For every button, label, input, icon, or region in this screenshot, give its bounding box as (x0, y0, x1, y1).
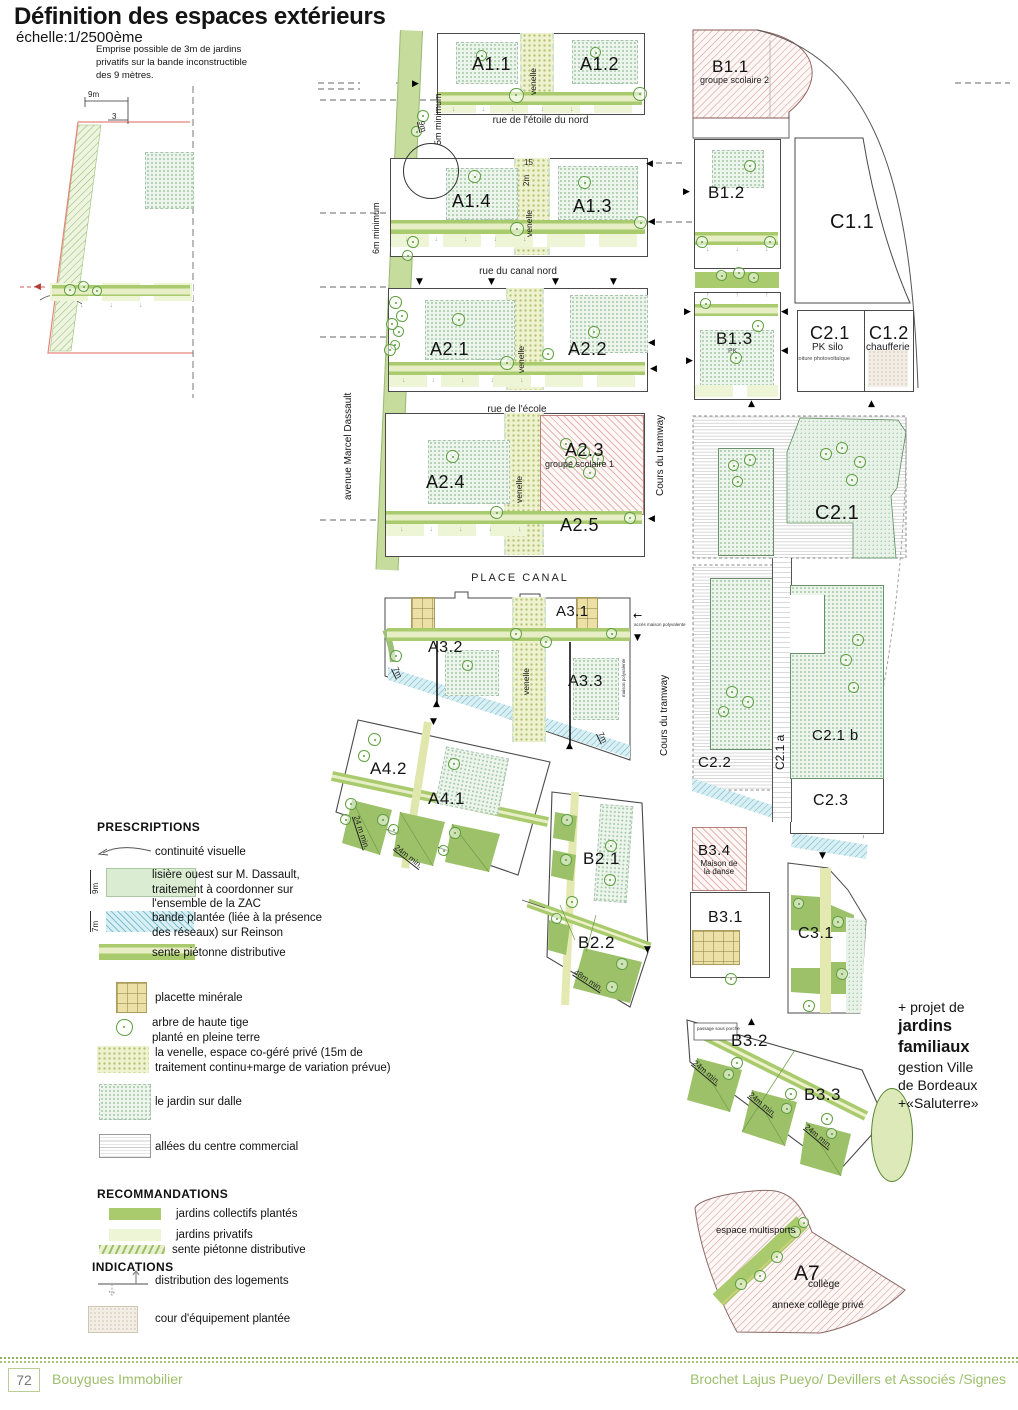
tree-icon (846, 474, 858, 486)
zone-a23-sub: groupe scolaire 1 (545, 460, 614, 469)
dim-2m: 2m (522, 170, 531, 186)
tree-icon (561, 814, 573, 826)
tree-icon (718, 706, 729, 717)
arrow-icon: ▶ (412, 80, 419, 89)
venelle-label-a2: venelle (517, 318, 526, 373)
continuite-arrow-icon (95, 843, 155, 859)
tree-icon (752, 320, 764, 332)
side-note-line2: jardins (898, 1018, 952, 1035)
tree-icon (606, 628, 617, 639)
footer-left-text: Bouygues Immobilier (52, 1371, 183, 1387)
venelle-label-a14: venelle (525, 182, 534, 237)
legend-item-continuite: continuité visuelle (155, 845, 246, 860)
tree-icon (771, 1251, 783, 1263)
tree-icon (604, 874, 616, 886)
note-text: Emprise possible de 3m de jardins privat… (96, 44, 247, 82)
zone-c22: C2.2 (698, 755, 731, 771)
dim-5m-minimum: 5m minimum (434, 70, 443, 145)
tree-icon (396, 310, 408, 322)
zone-c12-sub: chaufferie (866, 343, 910, 354)
footer-right-text: Brochet Lajus Pueyo/ Devillers et Associ… (690, 1371, 1006, 1387)
legend-item-sente: sente piétonne distributive (152, 946, 286, 961)
tree-icon (781, 1103, 792, 1114)
legend-swatch-dalle (99, 1084, 151, 1120)
zone-c12: C1.2 (869, 324, 909, 343)
tree-icon (723, 1069, 734, 1080)
zone-b11-sub: groupe scolaire 2 (700, 76, 769, 85)
tree-icon (402, 250, 413, 261)
street-tramway-2: Cours du tramway (660, 658, 671, 756)
legend-swatch-sente2 (99, 1245, 165, 1254)
legend-swatch-cour (88, 1306, 138, 1333)
zone-b31: B3.1 (708, 910, 743, 927)
zone-a13: A1.3 (573, 197, 612, 216)
arrow-icon: ▶ (684, 308, 691, 317)
tree-icon (64, 284, 76, 296)
arrows-a1: ↓↓↓↓↓ (452, 106, 600, 113)
inset-garden (145, 152, 194, 209)
tree-icon (388, 824, 399, 835)
arrow-icon: ▲ (433, 700, 440, 709)
legend-item-dalle: le jardin sur dalle (155, 1095, 242, 1110)
legend-swatch-allees (99, 1134, 151, 1158)
zone-c11: C1.1 (830, 212, 874, 233)
zone-a7-sub2: annexe collège privé (772, 1301, 864, 1312)
tree-icon (832, 916, 844, 928)
tree-icon (358, 750, 370, 762)
zone-a11: A1.1 (472, 55, 511, 74)
venelle-label-a1: venelle (529, 40, 538, 95)
zone-b21: B2.1 (583, 850, 620, 868)
roundabout-circle (403, 143, 459, 199)
tree-icon (540, 636, 552, 648)
arrow-icon: ◀ (648, 218, 655, 227)
tree-icon (390, 650, 402, 662)
arrow-icon: ▼ (819, 852, 826, 861)
side-note-line4: gestion Ville (898, 1060, 973, 1075)
arrow-icon: ▲ (748, 400, 755, 409)
zone-a33: A3.3 (568, 674, 603, 691)
arrows-a14: ↓↓↓↓↓ (405, 236, 553, 243)
venelle-label-a24: venelle (515, 448, 524, 503)
tree-icon (468, 170, 481, 183)
tree-icon (633, 87, 647, 101)
footer-rule-top (0, 1357, 1018, 1359)
side-note-line5: de Bordeaux (898, 1078, 977, 1093)
zone-c21-silo-sub1: PK silo (812, 343, 843, 354)
zone-a41: A4.1 (428, 790, 465, 808)
zone-a21: A2.1 (430, 340, 469, 359)
zone-a22: A2.2 (568, 340, 607, 359)
tree-icon (803, 1000, 815, 1012)
legend-recommandations-title: RECOMMANDATIONS (97, 1187, 228, 1201)
arrow-icon: ◀ (781, 347, 788, 356)
legend-item-cour: cour d'équipement plantée (155, 1312, 290, 1327)
garden-c22 (710, 578, 775, 750)
street-avenue-dassault: avenue Marcel Dassault (344, 388, 355, 500)
page-title: Définition des espaces extérieurs (14, 4, 386, 29)
arrow-icon: ▲ (868, 400, 875, 409)
arrow-icon: ▼ (552, 278, 559, 287)
tree-icon (509, 88, 524, 103)
tree-icon (848, 682, 859, 693)
arrow-icon: ◀ (781, 308, 788, 317)
zone-c21a: C2.1 a (774, 700, 787, 770)
arrow-icon: ▼ (488, 278, 495, 287)
tree-icon (634, 216, 647, 229)
arrow-icon: ▼ (610, 278, 617, 287)
zone-a7-sub1: collège (808, 1280, 840, 1291)
zone-a14: A1.4 (452, 192, 491, 211)
tree-icon (696, 236, 708, 248)
legend-prescriptions-title: PRESCRIPTIONS (97, 820, 200, 834)
tree-icon (821, 1113, 833, 1125)
tree-icon (754, 1270, 766, 1282)
tree-icon (748, 272, 759, 283)
venelle-label-a3: venelle (522, 640, 531, 695)
tree-icon (728, 460, 739, 471)
zone-c21-big: C2.1 (815, 503, 859, 524)
tree-icon (820, 448, 832, 460)
tree-icon (386, 318, 398, 330)
tree-icon (725, 973, 737, 985)
sente-a24 (386, 511, 642, 524)
tree-icon (438, 845, 449, 856)
street-place-canal: PLACE CANAL (420, 572, 620, 584)
inset-detail (20, 86, 193, 398)
maison-note: maison polyvalente (621, 655, 626, 697)
acces-arrow-icon: ← (633, 610, 642, 621)
arrow-icon: ▼ (644, 946, 651, 955)
tree-icon (700, 298, 711, 309)
legend-item-allees: allées du centre commercial (155, 1140, 298, 1155)
tree-icon (840, 654, 852, 666)
tree-icon (735, 1278, 747, 1290)
street-canal-nord: rue du canal nord (390, 266, 646, 277)
tree-icon (578, 176, 591, 189)
tree-icon (92, 286, 102, 296)
inset-left-arrow-icon: ◀ (34, 283, 41, 292)
arrows-b12: ↓↓↓ (706, 246, 795, 253)
legend-indications-title: INDICATIONS (92, 1260, 174, 1274)
zone-a23: A2.3 (565, 441, 604, 460)
tree-icon (852, 634, 864, 646)
arrows-a24: ↓↓↓↓↓ (400, 526, 548, 533)
tree-icon (407, 236, 419, 248)
inset-down-arrows: ↓↓↓ (80, 302, 169, 309)
inset-dim-3: 3 (112, 112, 116, 121)
zone-b34: B3.4 (698, 843, 730, 859)
tree-icon (732, 476, 743, 487)
legend-item-arbre: arbre de haute tige planté en pleine ter… (152, 1016, 260, 1045)
zone-b13: B1.3 (716, 330, 753, 348)
zone-b33: B3.3 (804, 1086, 841, 1104)
side-note-line6: +«Saluterre» (898, 1096, 979, 1111)
legend-swatch-collectifs (109, 1208, 161, 1220)
tree-icon (500, 356, 514, 370)
tree-icon (551, 913, 562, 924)
tree-icon (560, 854, 572, 866)
arrow-icon: ◀ (648, 515, 655, 524)
zone-b22: B2.2 (578, 934, 615, 952)
tree-icon (616, 958, 628, 970)
arrow-icon: ▼ (430, 718, 437, 727)
tree-icon (731, 1057, 743, 1069)
tree-icon (854, 456, 866, 468)
arrow-icon: ▼ (416, 278, 423, 287)
arrow-icon: ▼ (634, 634, 641, 643)
tree-icon (78, 281, 89, 292)
arrow-icon: ◀ (646, 160, 653, 169)
tramway-band-c21a (772, 558, 792, 822)
tree-icon (742, 696, 754, 708)
tree-icon (744, 160, 756, 172)
zone-b32: B3.2 (731, 1032, 768, 1050)
footer-page-box: 72 (8, 1368, 40, 1392)
dim-15: 15 (524, 158, 533, 167)
tree-icon (836, 442, 848, 454)
zone-a32: A3.2 (428, 640, 463, 657)
arrow-icon: ▶ (683, 188, 690, 197)
tree-icon (368, 733, 381, 746)
street-ecole: rue de l'école (389, 404, 645, 415)
tree-icon (490, 506, 503, 519)
zone-c21b: C2.1 b (812, 728, 859, 744)
zone-a12: A1.2 (580, 55, 619, 74)
zone-a24: A2.4 (426, 473, 465, 492)
arrow-icon: ◀ (648, 339, 655, 348)
street-tramway-1: Cours du tramway (656, 398, 667, 496)
legend-dim-9m: 9m (90, 870, 100, 894)
legend-tree-icon (116, 1019, 133, 1036)
tree-icon (446, 450, 459, 463)
zone-b12: B1.2 (708, 184, 745, 202)
cour-c12 (868, 350, 908, 387)
tree-icon (452, 313, 465, 326)
footer-page-number: 72 (16, 1372, 32, 1388)
tree-icon (566, 896, 578, 908)
zone-c21-silo: C2.1 (810, 324, 850, 343)
legend-item-bande: bande plantée (liée à la présence des ré… (152, 911, 322, 940)
tree-icon (345, 798, 357, 810)
sente-a3 (387, 628, 630, 641)
passage-note: passage sous porche (697, 1026, 740, 1031)
zone-a42: A4.2 (370, 760, 407, 778)
tree-icon (377, 814, 389, 826)
zone-multisports: espace multisports (716, 1226, 795, 1236)
tree-icon (448, 758, 460, 770)
acces-note: accès maison polyvalente (634, 622, 686, 627)
tree-icon (733, 267, 745, 279)
side-note-line3: familiaux (898, 1039, 970, 1056)
legend-item-collectifs: jardins collectifs plantés (176, 1207, 297, 1222)
garden-a32 (445, 650, 499, 696)
tree-icon (542, 348, 554, 360)
footer-rule-bottom (0, 1361, 1018, 1363)
tree-icon (588, 326, 600, 338)
tree-icon (510, 628, 522, 640)
c21b-notch (790, 595, 825, 654)
legend-item-placette: placette minérale (155, 991, 243, 1006)
tree-icon (716, 270, 727, 281)
tree-icon (785, 1088, 797, 1100)
side-note-line1: + projet de (898, 1000, 965, 1015)
legend-swatch-placette (116, 982, 147, 1013)
dim-6m-minimum: 6m minimum (372, 192, 381, 254)
zone-b13-sub: PK (728, 348, 737, 355)
tree-icon (793, 898, 804, 909)
legend-item-venelle: la venelle, espace co-géré privé (15m de… (155, 1046, 391, 1075)
tree-icon (798, 1217, 809, 1228)
arrow-icon: ▲ (748, 1018, 755, 1027)
arrow-icon: ◀ (650, 365, 657, 374)
legend-swatch-venelle (97, 1046, 149, 1073)
tree-icon (462, 660, 473, 671)
arrow-icon: ▲ (566, 742, 573, 751)
plan-page: Définition des espaces extérieurs échell… (0, 0, 1018, 1410)
zone-b11: B1.1 (712, 58, 749, 76)
zone-a31: A3.1 (556, 604, 588, 620)
tree-icon (606, 981, 618, 993)
sente-a1 (438, 92, 642, 105)
arrows-a2: ↓↓↓↓↓ (402, 377, 550, 384)
tree-icon (836, 968, 848, 980)
tree-icon (744, 454, 756, 466)
placette-b31 (692, 930, 740, 965)
priv-b13 (695, 385, 778, 397)
tree-icon (389, 296, 402, 309)
street-etoile-nord: rue de l'étoile du nord (438, 115, 643, 126)
legend-dim-7m: 7m (90, 911, 100, 932)
zone-c23: C2.3 (813, 793, 848, 810)
arrow-icon: ▶ (686, 357, 693, 366)
zone-c21-silo-sub2: toiture photovoltaïque (797, 357, 850, 363)
legend-swatch-privatifs (109, 1229, 161, 1241)
tree-icon (510, 222, 524, 236)
tree-icon (764, 236, 776, 248)
legend-item-sente2: sente piétonne distributive (172, 1243, 306, 1258)
zone-a25: A2.5 (560, 516, 599, 535)
tree-icon (384, 344, 396, 356)
legend-item-distribution: distribution des logements (155, 1274, 289, 1289)
legend-item-privatifs: jardins privatifs (176, 1228, 253, 1243)
zone-b34-sub: Maison de la danse (696, 860, 742, 877)
zone-c31: C3.1 (798, 926, 834, 943)
arrows-b13: ↑↑↑ (706, 292, 795, 299)
tree-icon (340, 814, 351, 825)
tree-icon (726, 686, 738, 698)
tree-icon (624, 512, 636, 524)
inset-dim-9m: 9m (88, 90, 99, 99)
legend-item-lisiere: lisière ouest sur M. Dassault, traitemen… (152, 868, 300, 912)
tree-icon (449, 827, 461, 839)
